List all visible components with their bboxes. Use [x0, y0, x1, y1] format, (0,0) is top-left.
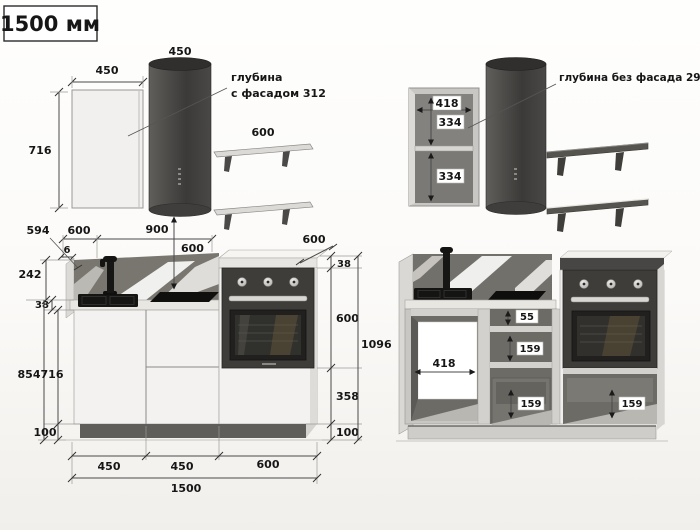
hood-cylinder-right: [486, 58, 546, 215]
dim-top-panel-38: 38: [337, 259, 351, 270]
wall-cabinet-front: [72, 90, 143, 208]
cooktop-right-view: [488, 291, 546, 300]
worktop-right-view: [405, 300, 556, 309]
wall-view-right: 418 334 334 глубина без фасада 296: [409, 58, 700, 233]
page-title: 1500 мм: [0, 12, 100, 36]
dim-450-b: 450: [171, 460, 194, 473]
note-depth-with-front-1: глубина: [231, 71, 282, 84]
oven-column: [219, 250, 327, 424]
wall-view-left: 450 716 450 глубина с фасадом 312 600: [29, 45, 326, 230]
title-box: 1500 мм: [0, 6, 100, 41]
dim-450-a: 450: [98, 460, 121, 473]
oven: [222, 268, 314, 368]
dim-wall-cabinet-width: 450: [96, 64, 119, 77]
dim-depth-600: 600: [303, 233, 326, 246]
plinth-right-view: [396, 426, 668, 441]
dim-bottom-drawer-mid-159: 159: [521, 399, 542, 410]
dim-bottom-drawer-right-159: 159: [622, 399, 643, 410]
plinth: [66, 424, 322, 440]
dim-600-b: 600: [257, 458, 280, 471]
front-view-right: 418 55 159 159: [396, 247, 672, 441]
oven-handle: [571, 297, 649, 302]
cabinet-shelf: [415, 146, 473, 151]
oven-window-right-view: [572, 311, 650, 361]
dim-oven-600: 600: [336, 312, 359, 325]
wall-shelf-right-1: [547, 143, 648, 176]
cooktop: [150, 292, 219, 302]
dim-worktop-38: 38: [35, 300, 49, 311]
technical-drawing-page: 1500 мм 450 716 450 глубина с фасадом 31…: [0, 0, 700, 530]
dim-lower-section: 334: [439, 170, 462, 183]
dim-shelf-width: 600: [252, 126, 275, 139]
front-view-left: 594 600 900 6 600 600 242 38 854 716 100: [18, 217, 392, 495]
dim-opening-418: 418: [433, 357, 456, 370]
dim-carcass-716: 716: [41, 368, 64, 381]
dim-plinth-100-left: 100: [34, 426, 57, 439]
under-oven-open: [563, 368, 657, 424]
dim-total-1096: 1096: [361, 338, 392, 351]
oven-handle: [229, 296, 307, 301]
note-depth-no-front: глубина без фасада 296: [559, 72, 700, 84]
dim-plinth-100-right: 100: [336, 426, 359, 439]
dim-900: 900: [146, 223, 169, 236]
dim-hood-gap: 600: [181, 242, 204, 255]
dim-base-854: 854: [18, 368, 41, 381]
dim-wall-cabinet-height: 716: [29, 144, 52, 157]
base-cabinets: [74, 310, 219, 424]
kitchen-dimension-drawing: 1500 мм 450 716 450 глубина с фасадом 31…: [0, 0, 700, 530]
dim-total-1500: 1500: [171, 482, 202, 495]
dim-under-oven-358: 358: [336, 390, 359, 403]
dim-hood-width: 450: [169, 45, 192, 58]
note-depth-with-front-2: с фасадом 312: [231, 87, 326, 100]
oven-window: [230, 310, 306, 360]
dim-mid-drawer-159: 159: [520, 344, 541, 355]
dim-594: 594: [27, 224, 50, 237]
dim-600-top: 600: [68, 224, 91, 237]
dim-upper-section: 334: [439, 116, 462, 129]
sink-right-view: [414, 288, 472, 300]
dim-6: 6: [64, 245, 71, 256]
wall-shelf-2: [214, 202, 313, 230]
dim-inner-width: 418: [436, 97, 459, 110]
hood-cylinder: [149, 58, 211, 217]
dim-top-gap-55: 55: [520, 312, 534, 323]
dim-backsplash-242: 242: [19, 268, 42, 281]
wall-shelf-1: [214, 144, 313, 172]
oven-column-right-view: [560, 251, 672, 430]
wall-shelf-right-2: [547, 199, 648, 232]
sink: [78, 294, 138, 307]
oven-right-view: [563, 270, 657, 368]
